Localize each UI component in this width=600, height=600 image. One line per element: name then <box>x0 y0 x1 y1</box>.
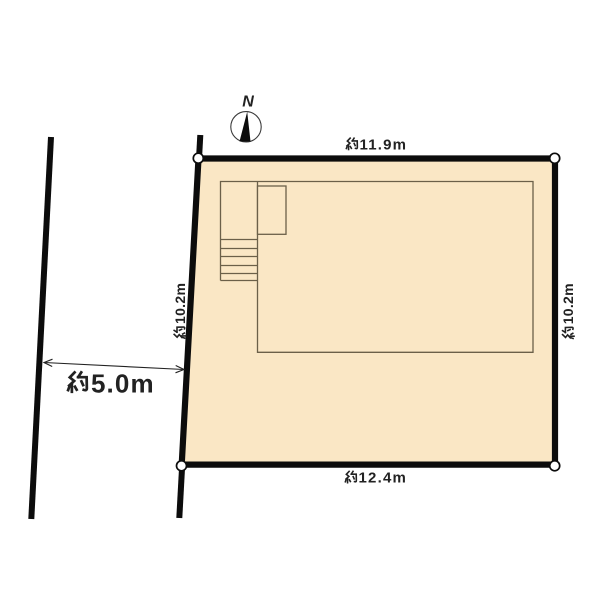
svg-text:5.0m: 5.0m <box>91 368 155 398</box>
svg-text:N: N <box>242 94 254 111</box>
svg-text:10.2m: 10.2m <box>172 283 188 324</box>
svg-text:12.4m: 12.4m <box>359 470 408 487</box>
svg-text:11.9m: 11.9m <box>360 136 408 153</box>
svg-text:10.2m: 10.2m <box>560 283 576 324</box>
